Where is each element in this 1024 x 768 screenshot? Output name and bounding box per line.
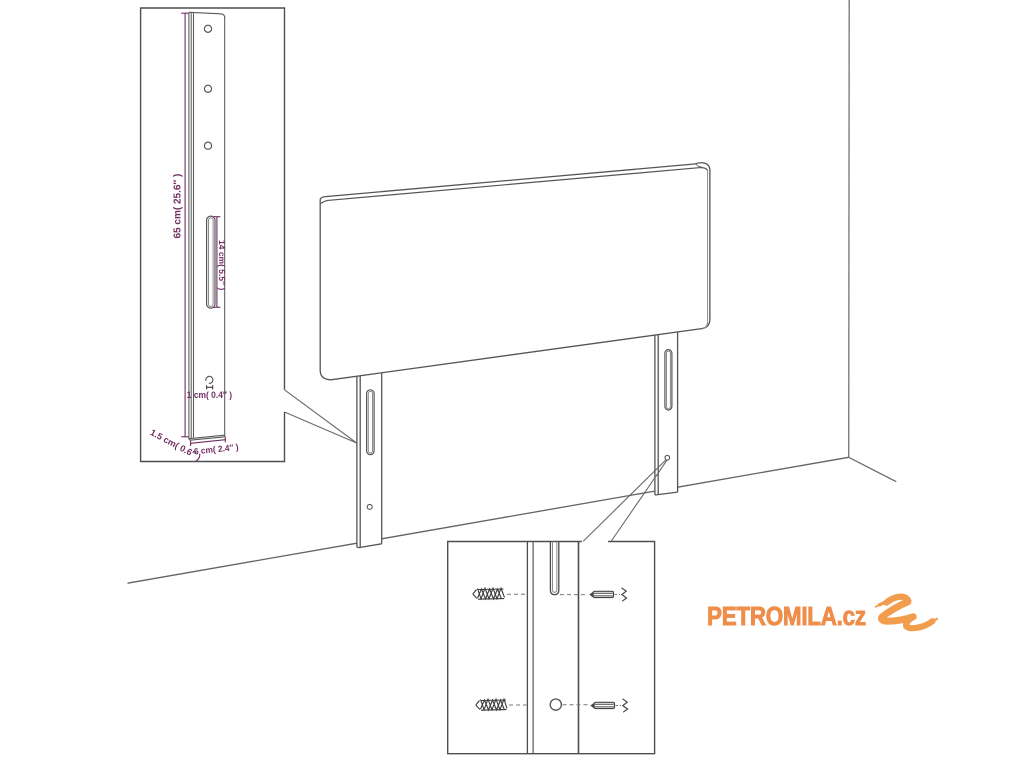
svg-text:1 cm( 0.4″ ): 1 cm( 0.4″ ): [187, 390, 232, 400]
svg-text:PETROMILA.cz: PETROMILA.cz: [707, 603, 866, 632]
svg-text:14 cm( 5.5″ ): 14 cm( 5.5″ ): [217, 240, 227, 291]
svg-text:65 cm( 25.6″ ): 65 cm( 25.6″ ): [173, 174, 184, 239]
